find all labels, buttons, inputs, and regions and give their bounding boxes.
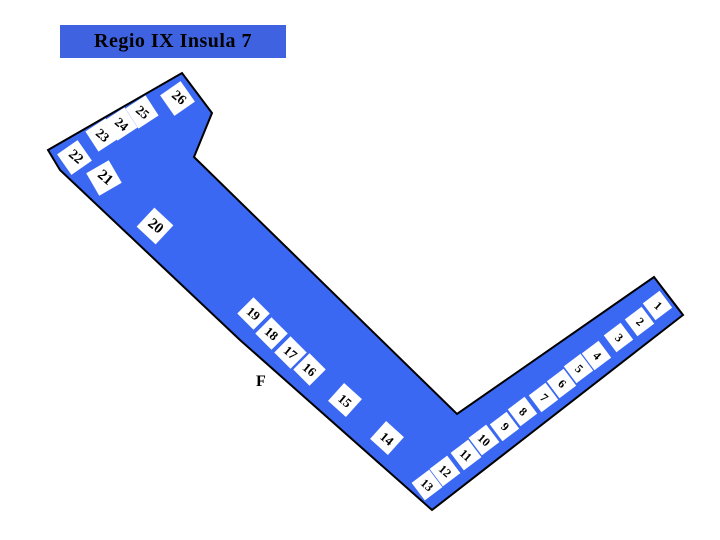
entrance-14[interactable]: 14 — [370, 421, 404, 455]
entrance-number: 9 — [498, 420, 510, 433]
entrance-number: 25 — [133, 103, 151, 121]
street-label-f: F — [256, 373, 266, 391]
entrance-number: 15 — [336, 391, 354, 409]
entrance-number: 8 — [516, 405, 528, 418]
entrance-21[interactable]: 21 — [86, 160, 122, 196]
entrance-number: 21 — [93, 167, 114, 188]
entrance-layer: 1234567891011121314151617181920212223242… — [0, 0, 720, 540]
entrance-number: 20 — [144, 215, 165, 236]
entrance-number: 7 — [537, 391, 549, 404]
entrance-number: 24 — [112, 115, 130, 133]
entrance-number: 10 — [476, 432, 493, 449]
entrance-number: 3 — [612, 331, 624, 344]
entrance-number: 26 — [167, 88, 187, 108]
entrance-number: 4 — [590, 349, 602, 362]
entrance-number: 18 — [262, 324, 280, 342]
entrance-number: 6 — [555, 377, 567, 390]
entrance-20[interactable]: 20 — [137, 208, 174, 245]
entrance-number: 5 — [572, 362, 584, 375]
entrance-number: 13 — [419, 477, 436, 494]
map-canvas: 1234567891011121314151617181920212223242… — [0, 0, 720, 540]
entrance-number: 14 — [378, 429, 396, 447]
map-title: Regio IX Insula 7 — [60, 25, 286, 58]
entrance-22[interactable]: 22 — [57, 140, 92, 175]
entrance-number: 17 — [281, 343, 299, 361]
entrance-26[interactable]: 26 — [160, 81, 195, 116]
entrance-number: 2 — [633, 315, 645, 328]
entrance-15[interactable]: 15 — [328, 383, 362, 417]
entrance-3[interactable]: 3 — [603, 322, 632, 351]
entrance-number: 16 — [300, 360, 318, 378]
entrance-number: 19 — [244, 304, 262, 322]
entrance-number: 11 — [458, 447, 474, 464]
entrance-number: 1 — [651, 299, 663, 312]
entrance-number: 23 — [93, 126, 111, 144]
entrance-number: 12 — [437, 463, 454, 480]
entrance-number: 22 — [64, 147, 84, 167]
